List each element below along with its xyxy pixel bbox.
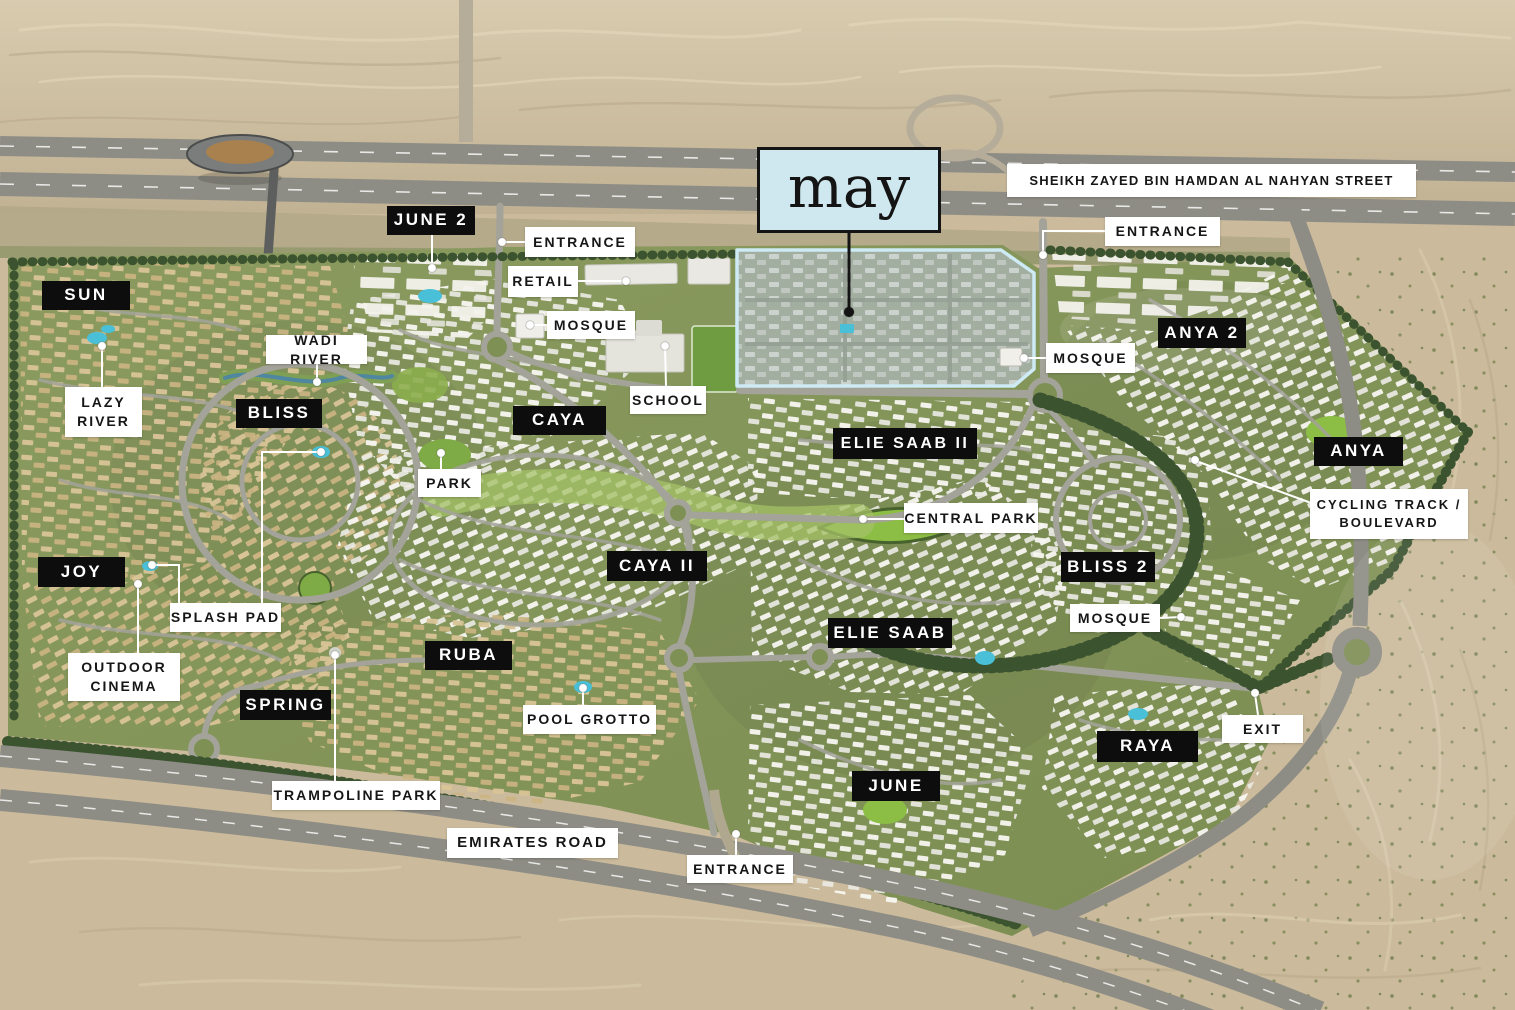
retail-label: RETAIL — [508, 266, 578, 297]
emirates-road-label: EMIRATES ROAD — [447, 828, 618, 858]
bliss-label: BLISS — [236, 399, 322, 428]
elie-saab-ii-label: ELIE SAAB II — [833, 428, 977, 459]
masterplan-map: SHEIKH ZAYED BIN HAMDAN AL NAHYAN STREET… — [0, 0, 1515, 1010]
caya-ii-label: CAYA II — [607, 551, 707, 581]
trampoline-park-label: TRAMPOLINE PARK — [272, 781, 440, 810]
anya-label: ANYA — [1314, 437, 1403, 466]
ruba-label: RUBA — [425, 641, 512, 670]
bliss-2-label: BLISS 2 — [1061, 552, 1155, 582]
wadi-river-label: WADI RIVER — [266, 335, 367, 364]
project-logo-text: may — [788, 153, 910, 221]
outdoor-cinema-label: OUTDOOR CINEMA — [68, 653, 180, 701]
entrance-south-label: ENTRANCE — [687, 855, 793, 883]
pool-grotto-label: POOL GROTTO — [523, 705, 656, 734]
raya-label: RAYA — [1097, 731, 1198, 762]
cycling-track-boulevard-label: CYCLING TRACK / BOULEVARD — [1310, 489, 1468, 539]
anya-2-label: ANYA 2 — [1158, 318, 1246, 348]
school-label: SCHOOL — [630, 386, 706, 414]
project-logo: may — [757, 147, 941, 233]
splash-pad-label: SPLASH PAD — [170, 603, 281, 632]
central-park-label: CENTRAL PARK — [904, 503, 1038, 533]
entrance-north-label: ENTRANCE — [525, 227, 635, 257]
park-label: PARK — [418, 469, 481, 497]
exit-label: EXIT — [1222, 715, 1303, 743]
mosque-bliss-2-label: MOSQUE — [1070, 604, 1160, 632]
joy-label: JOY — [38, 557, 125, 587]
lazy-river-label: LAZY RIVER — [65, 387, 142, 437]
street-sheikh-zayed-label: SHEIKH ZAYED BIN HAMDAN AL NAHYAN STREET — [1007, 164, 1416, 197]
entrance-east-label: ENTRANCE — [1105, 217, 1220, 246]
mosque-north-label: MOSQUE — [547, 311, 635, 339]
may-parcel — [737, 250, 1034, 386]
june-2-label: JUNE 2 — [387, 206, 475, 235]
mosque-may-label: MOSQUE — [1046, 343, 1135, 373]
elie-saab-label: ELIE SAAB — [828, 618, 952, 648]
june-label: JUNE — [852, 771, 940, 801]
caya-label: CAYA — [513, 406, 606, 435]
spring-label: SPRING — [240, 690, 331, 720]
sun-label: SUN — [42, 281, 130, 310]
